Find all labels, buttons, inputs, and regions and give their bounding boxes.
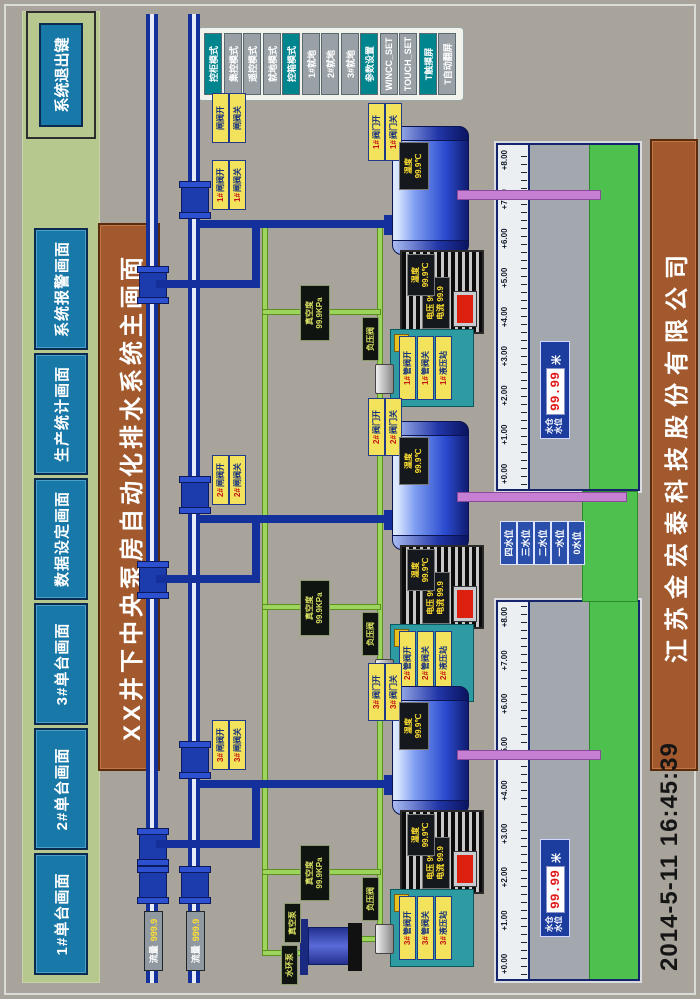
valve-close-tag[interactable]: 闸阀关 (229, 93, 246, 143)
company-name-bar: 江苏金宏泰科技股份有限公司 (650, 139, 698, 771)
suction-pipe (458, 751, 600, 759)
gate-valve-close-tag[interactable]: 3#闸阀关 (229, 720, 246, 770)
datetime-display: 2014-5-11 16:45:39 (656, 742, 684, 971)
vacuum-gauge-tag: 真空度 99.9KPa (300, 285, 330, 341)
pump-temperature-plate: 温度 99.9℃ (399, 702, 429, 750)
discharge-elbow-pipe (156, 840, 260, 848)
suction-pipe (458, 493, 626, 501)
discharge-elbow-pipe (252, 515, 260, 583)
level-setpoint-button-0[interactable]: 0水位 (568, 521, 585, 565)
motor-body[interactable]: 电压 99.9 电流 99.9 温度 99.9℃ (400, 545, 484, 629)
pump-temperature-plate: 温度 99.9℃ (399, 437, 429, 485)
water-ring-pump-tag: 水环泵 (281, 945, 298, 985)
pipe-valve-close-tag[interactable]: 3#管阀关 (417, 896, 434, 960)
hydraulic-station-tag[interactable]: 3#液压站 (435, 896, 452, 960)
motor-alarm-indicator (454, 292, 476, 326)
discharge-elbow-pipe (252, 780, 260, 848)
hydraulic-pump-icon (375, 924, 394, 954)
motor-body[interactable]: 电压 99.9 电流 99.9 温度 99.9℃ (400, 250, 484, 334)
discharge-riser-pipe (198, 780, 398, 788)
gate-valve-open-tag[interactable]: 3#闸阀开 (212, 720, 229, 770)
suction-pipe (458, 191, 600, 199)
gate-valve-close-tag[interactable]: 1#闸阀关 (229, 160, 246, 210)
nav-button-system-alarm[interactable]: 系统报警画面 (34, 228, 88, 350)
motor-temperature-plate: 温度 99.9℃ (407, 254, 435, 296)
discharge-riser-pipe (198, 220, 398, 228)
level-setpoint-button-1[interactable]: 一水位 (551, 521, 568, 565)
nav-button-pump2-screen[interactable]: 2#单台画面 (34, 728, 88, 850)
vacuum-gauge-tag: 真空度 99.9KPa (300, 580, 330, 636)
discharge-elbow-pipe (252, 220, 260, 288)
motor-alarm-indicator (454, 587, 476, 621)
gate-valve-close-tag[interactable]: 2#闸阀关 (229, 455, 246, 505)
motor-temperature-plate: 温度 99.9℃ (407, 549, 435, 591)
suction-valve-open-tag[interactable]: 3#阀门开 (368, 663, 385, 721)
vacuum-valve-tag: 负压阀 (362, 317, 379, 361)
pump-body[interactable]: 温度 99.9℃ (392, 422, 469, 549)
discharge-riser-pipe (198, 515, 398, 523)
valve-open-tag[interactable]: 闸阀开 (212, 93, 229, 143)
nav-button-data-setting[interactable]: 数据设定画面 (34, 478, 88, 600)
vacuum-valve-tag: 负压阀 (362, 877, 379, 921)
pipe-valve-open-tag[interactable]: 3#管阀开 (399, 896, 416, 960)
exit-button-frame: 系统退出键 (26, 11, 96, 139)
discharge-elbow-pipe (156, 280, 260, 288)
nav-button-pump1-screen[interactable]: 1#单台画面 (34, 853, 88, 975)
rotated-hmi-photo: 1#单台画面 2#单台画面 3#单台画面 数据设定画面 生产统计画面 系统报警画… (0, 0, 700, 999)
nav-button-pump3-screen[interactable]: 3#单台画面 (34, 603, 88, 725)
nav-button-production-stats[interactable]: 生产统计画面 (34, 353, 88, 475)
suction-valve-open-tag[interactable]: 2#阀门开 (368, 398, 385, 456)
vacuum-gauge-tag: 真空度 99.9KPa (300, 845, 330, 901)
gate-valve-open-tag[interactable]: 2#闸阀开 (212, 455, 229, 505)
suction-valve-open-tag[interactable]: 1#阀门开 (368, 103, 385, 161)
level-setpoint-button-2[interactable]: 二水位 (534, 521, 551, 565)
gate-valve-open-tag[interactable]: 1#闸阀开 (212, 160, 229, 210)
motor-temperature-plate: 温度 99.9℃ (407, 814, 435, 856)
level-setpoint-button-4[interactable]: 四水位 (500, 521, 517, 565)
hydraulic-station-panel: 3#管阀开 3#管阀关 3#液压站 (390, 889, 474, 967)
level-setpoint-button-3[interactable]: 三水位 (517, 521, 534, 565)
vacuum-pump-tag: 真空泵 (284, 903, 301, 943)
hmi-main-screen: 1#单台画面 2#单台画面 3#单台画面 数据设定画面 生产统计画面 系统报警画… (0, 0, 700, 999)
system-exit-button[interactable]: 系统退出键 (39, 23, 83, 127)
discharge-elbow-pipe (156, 575, 260, 583)
motor-body[interactable]: 电压 99.9 电流 99.9 温度 99.9℃ (400, 810, 484, 894)
pump-temperature-plate: 温度 99.9℃ (399, 142, 429, 190)
pump-unit-3: 真空度 99.9KPa 负压阀 3#闸阀开 3#闸阀关 温度 99.9℃ 电压 … (140, 639, 640, 969)
motor-alarm-indicator (454, 852, 476, 886)
